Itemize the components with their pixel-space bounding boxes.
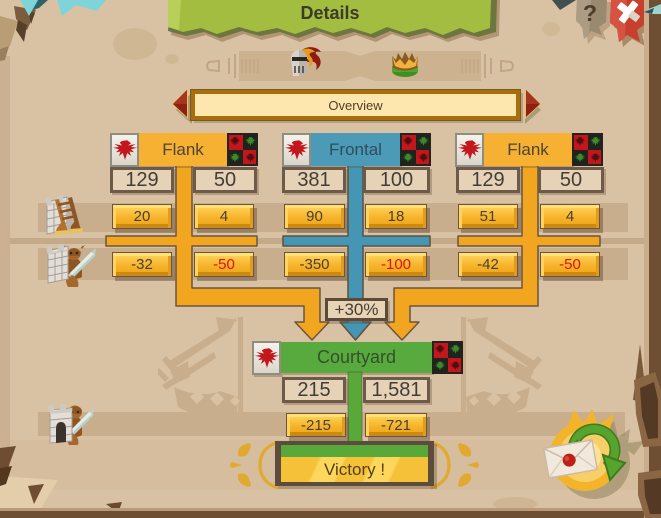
svg-text:?: ? [583, 0, 597, 26]
